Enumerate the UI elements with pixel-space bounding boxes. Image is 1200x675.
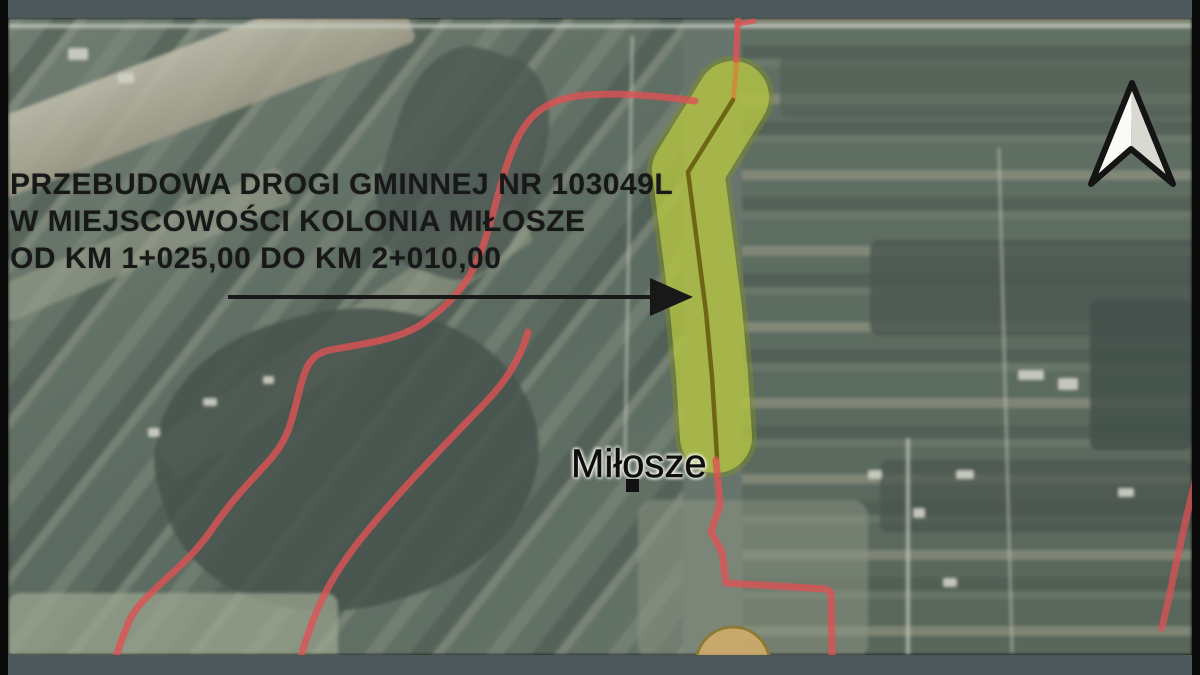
project-title: PRZEBUDOWA DROGI GMINNEJ NR 103049L W MI… (10, 166, 673, 277)
map-screenshot: PRZEBUDOWA DROGI GMINNEJ NR 103049L W MI… (0, 0, 1200, 675)
frame-bar-right (1192, 0, 1200, 675)
frame-bar-left (0, 0, 8, 675)
frame-strip-top (0, 0, 1200, 18)
place-dot (626, 479, 639, 492)
project-title-line3: OD KM 1+025,00 DO KM 2+010,00 (10, 240, 673, 277)
boundary-line-southwest (296, 332, 528, 675)
project-title-line1: PRZEBUDOWA DROGI GMINNEJ NR 103049L (10, 166, 673, 203)
boundary-line-top-stub (738, 21, 754, 24)
annotation-layer (0, 0, 1200, 675)
frame-strip-bottom (0, 655, 1200, 675)
project-title-line2: W MIEJSCOWOŚCI KOLONIA MIŁOSZE (10, 203, 673, 240)
north-arrow-icon (1091, 83, 1173, 184)
